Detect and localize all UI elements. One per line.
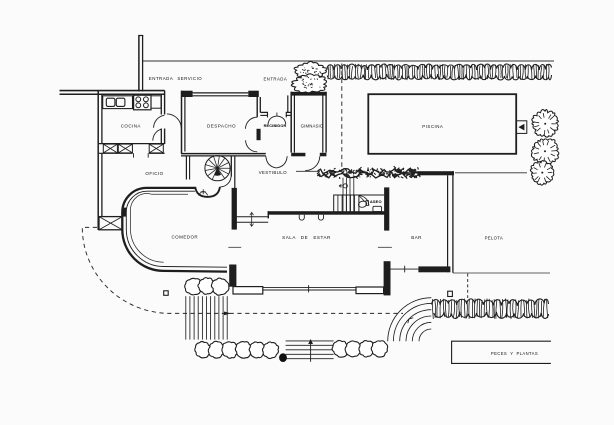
- svg-text:RECIBIDOR: RECIBIDOR: [264, 123, 287, 128]
- svg-text:ENTRADA: ENTRADA: [263, 77, 287, 82]
- svg-text:BAR: BAR: [411, 235, 422, 240]
- svg-text:SALA DE ESTAR: SALA DE ESTAR: [282, 235, 331, 240]
- svg-text:COMEDOR: COMEDOR: [171, 235, 198, 240]
- svg-text:DESPACHO: DESPACHO: [207, 123, 236, 128]
- svg-text:PECES Y PLANTAS: PECES Y PLANTAS: [491, 351, 538, 356]
- svg-text:ASEO: ASEO: [370, 199, 382, 204]
- svg-text:VESTIBULO: VESTIBULO: [259, 170, 288, 175]
- svg-text:PELOTA: PELOTA: [485, 235, 503, 240]
- svg-text:PISCINA: PISCINA: [422, 124, 443, 129]
- svg-text:ENTRADA SERVICIO: ENTRADA SERVICIO: [149, 76, 203, 81]
- svg-text:COCINA: COCINA: [121, 123, 141, 128]
- svg-text:OFICIO: OFICIO: [145, 171, 163, 176]
- svg-text:GIMNASIO: GIMNASIO: [301, 123, 324, 128]
